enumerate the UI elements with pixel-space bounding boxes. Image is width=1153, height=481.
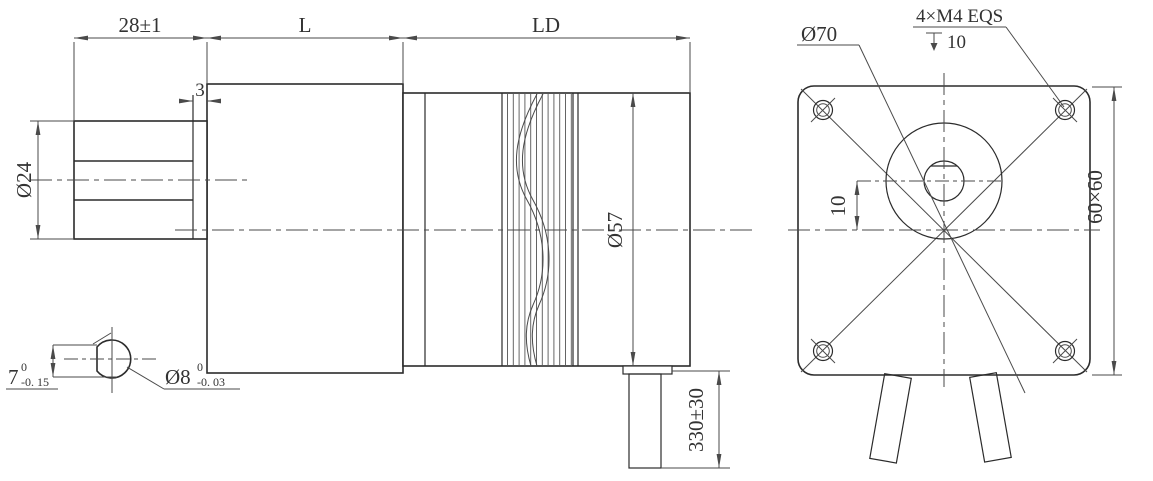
dim-bolt-circle-label: Ø70 <box>801 22 837 46</box>
dim-pilot-step-label: 3 <box>195 80 205 101</box>
front-view: Ø70 4×M4 EQS 10 10 60×60 <box>788 6 1122 463</box>
dim-motor-length-label: LD <box>532 13 560 37</box>
dim-cable-length-label: 330±30 <box>684 388 708 452</box>
dim-across-flat: 7 0 -0. 15 <box>6 345 117 389</box>
hole-depth-label: 10 <box>947 32 966 53</box>
dim-gearbox-length-label: L <box>299 13 312 37</box>
shaft-diameter-tol-upper: 0 <box>197 360 203 374</box>
drawing-canvas: 28±1 L LD 3 Ø24 Ø57 330±30 <box>0 0 1153 481</box>
shaft-section-detail: 7 0 -0. 15 Ø8 0 -0. 03 <box>6 327 240 393</box>
across-flat-tol-upper: 0 <box>21 360 27 374</box>
gearbox-outline <box>207 84 403 373</box>
dim-frame-size-label: 60×60 <box>1083 170 1107 224</box>
dim-motor-diameter-label: Ø57 <box>603 212 627 248</box>
side-view: 28±1 L LD 3 Ø24 Ø57 330±30 <box>12 13 755 468</box>
shaft-diameter-leader <box>127 367 164 389</box>
cable-body <box>629 374 661 468</box>
gear-motor-technical-drawing: 28±1 L LD 3 Ø24 Ø57 330±30 <box>0 0 1153 481</box>
cable-right <box>970 373 1012 462</box>
cable-left <box>870 374 912 463</box>
dim-cable-length: 330±30 <box>661 371 730 468</box>
cables-front <box>870 373 1011 463</box>
dim-shaft-offset-label: 10 <box>826 196 850 217</box>
output-boss-and-shaft <box>74 95 207 239</box>
dim-shaft-length-label: 28±1 <box>118 13 161 37</box>
dim-boss-diameter-label: Ø24 <box>12 161 36 198</box>
mount-holes-label: 4×M4 EQS <box>916 6 1003 27</box>
shaft-diameter-value: Ø8 <box>165 365 191 389</box>
across-flat-tol-lower: -0. 15 <box>21 375 49 389</box>
cable-gland <box>623 366 672 374</box>
depth-icon <box>926 33 942 51</box>
across-flat-value: 7 <box>8 365 19 389</box>
cable-side <box>623 366 672 468</box>
shaft-diameter-tol-lower: -0. 03 <box>197 375 225 389</box>
